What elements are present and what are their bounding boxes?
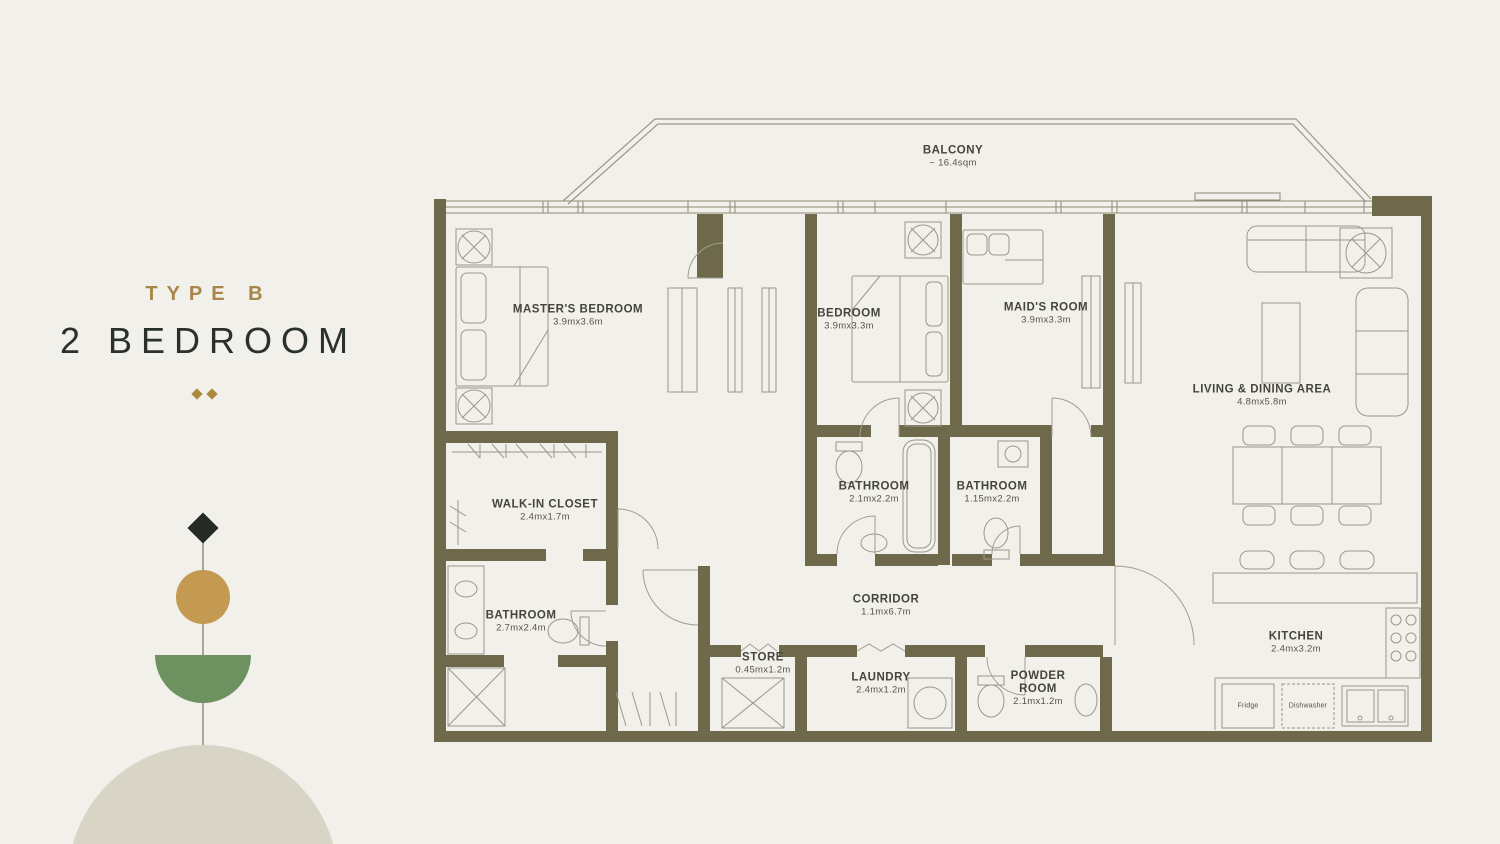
room-name: KITCHEN <box>1269 630 1324 643</box>
room-dims: 2.1mx1.2m <box>992 697 1084 708</box>
unit-type-label: TYPE B <box>38 283 370 306</box>
room-dims: 0.45mx1.2m <box>735 666 790 677</box>
room-name: BEDROOM <box>817 307 881 320</box>
room-label-bathroom-1: BATHROOM 2.1mx2.2m <box>839 480 910 505</box>
room-label-bathroom-master: BATHROOM 2.7mx2.4m <box>486 609 557 634</box>
room-label-living-dining: LIVING & DINING AREA 4.8mx5.8m <box>1193 383 1332 408</box>
room-label-masters-bedroom: MASTER'S BEDROOM 3.9mx3.6m <box>513 303 643 328</box>
room-name: BATHROOM <box>839 480 910 493</box>
door-swings <box>571 243 1194 695</box>
room-label-balcony: BALCONY ~ 16.4sqm <box>923 144 983 169</box>
room-label-bedroom: BEDROOM 3.9mx3.3m <box>817 307 881 332</box>
room-name: CORRIDOR <box>853 593 920 606</box>
furniture-master-bathroom <box>448 566 676 726</box>
room-dims: 2.1mx2.2m <box>839 495 910 506</box>
room-dims: ~ 16.4sqm <box>923 159 983 170</box>
dishwasher-label: Dishwasher <box>1289 703 1328 710</box>
floor-plan-drawing <box>0 0 1500 844</box>
room-name: POWDER ROOM <box>992 670 1084 696</box>
room-dims: 2.4mx1.7m <box>492 513 598 524</box>
room-label-walk-in-closet: WALK-IN CLOSET 2.4mx1.7m <box>492 498 598 523</box>
page-title: 2 BEDROOM <box>38 320 370 362</box>
room-name: MAID'S ROOM <box>1004 301 1088 314</box>
diamond-icon <box>206 388 217 399</box>
room-dims: 3.9mx3.6m <box>513 318 643 329</box>
room-name: STORE <box>735 651 790 664</box>
room-dims: 2.7mx2.4m <box>486 624 557 635</box>
room-label-bathroom-2: BATHROOM 1.15mx2.2m <box>957 480 1028 505</box>
room-name: WALK-IN CLOSET <box>492 498 598 511</box>
room-dims: 3.9mx3.3m <box>817 322 881 333</box>
furniture-laundry-store <box>722 678 952 728</box>
furniture-living-dining <box>1125 226 1408 525</box>
room-label-laundry: LAUNDRY 2.4mx1.2m <box>851 671 910 696</box>
room-name: BALCONY <box>923 144 983 157</box>
room-name: LAUNDRY <box>851 671 910 684</box>
room-dims: 1.1mx6.7m <box>853 608 920 619</box>
furniture-walk-in-closet <box>450 444 602 545</box>
room-dims: 3.9mx3.3m <box>1004 316 1088 327</box>
title-block: TYPE B 2 BEDROOM <box>38 283 370 398</box>
room-name: BATHROOM <box>486 609 557 622</box>
room-name: BATHROOM <box>957 480 1028 493</box>
room-label-corridor: CORRIDOR 1.1mx6.7m <box>853 593 920 618</box>
floor-plan-page: BALCONY ~ 16.4sqm MASTER'S BEDROOM 3.9mx… <box>0 0 1500 844</box>
room-label-powder-room: POWDER ROOM 2.1mx1.2m <box>992 670 1084 708</box>
diamond-divider-icon <box>38 390 370 398</box>
fridge-label: Fridge <box>1237 703 1258 710</box>
diamond-icon <box>191 388 202 399</box>
room-dims: 2.4mx1.2m <box>851 686 910 697</box>
room-dims: 2.4mx3.2m <box>1269 645 1324 656</box>
room-dims: 1.15mx2.2m <box>957 495 1028 506</box>
room-name: LIVING & DINING AREA <box>1193 383 1332 396</box>
room-label-kitchen: KITCHEN 2.4mx3.2m <box>1269 630 1324 655</box>
room-dims: 4.8mx5.8m <box>1193 398 1332 409</box>
window-band <box>446 193 1372 213</box>
room-label-store: STORE 0.45mx1.2m <box>735 651 790 676</box>
room-name: MASTER'S BEDROOM <box>513 303 643 316</box>
room-label-maids-room: MAID'S ROOM 3.9mx3.3m <box>1004 301 1088 326</box>
